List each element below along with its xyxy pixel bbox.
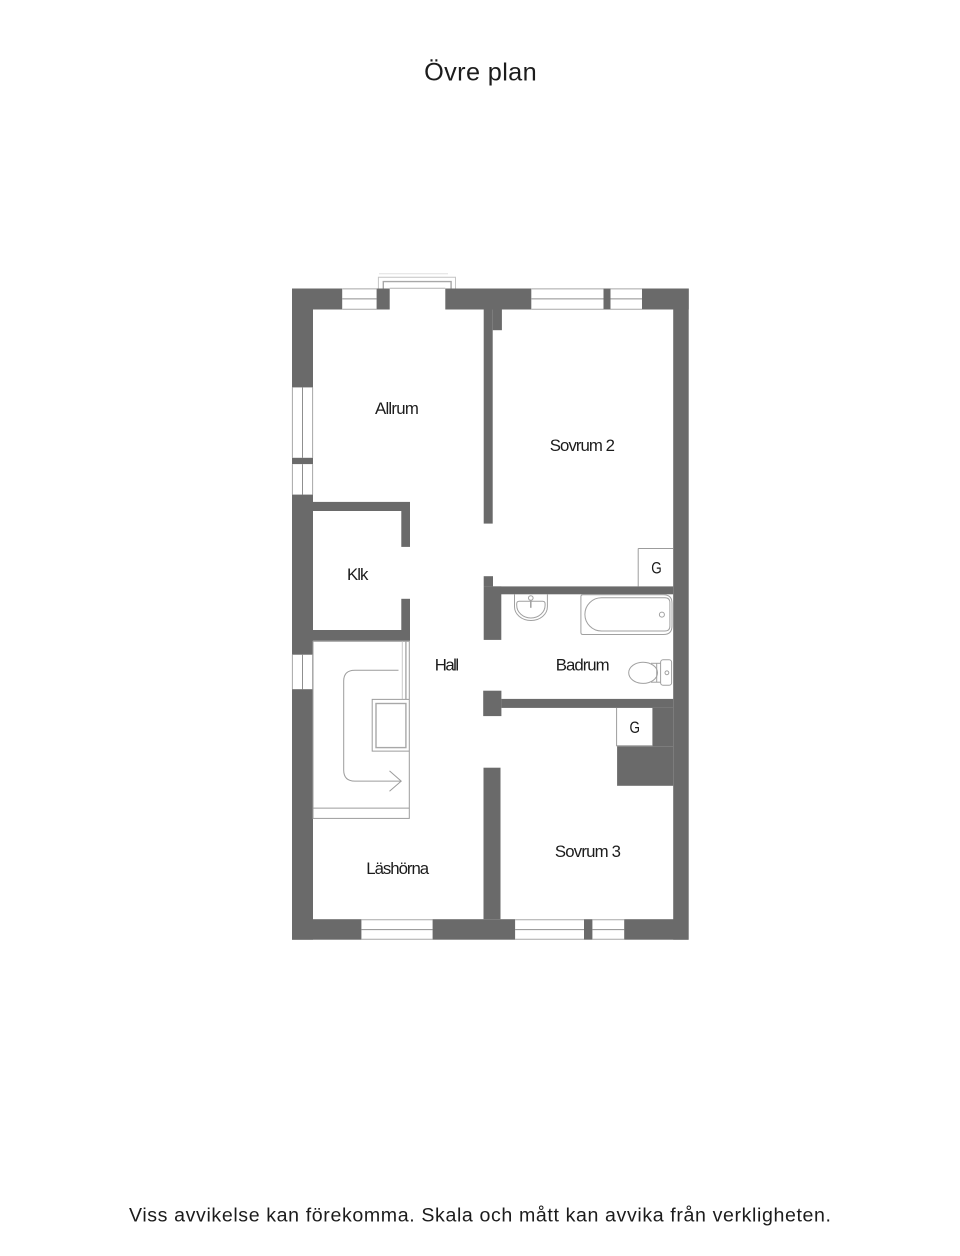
svg-text:Badrum: Badrum	[556, 655, 610, 674]
svg-text:Sovrum 3: Sovrum 3	[555, 842, 621, 861]
svg-text:Viss avvikelse kan förekomma.: Viss avvikelse kan förekomma. Skala och …	[129, 1205, 831, 1227]
svg-text:Allrum: Allrum	[375, 399, 419, 418]
svg-text:Sovrum 2: Sovrum 2	[550, 436, 615, 455]
svg-text:Övre plan: Övre plan	[424, 59, 537, 87]
svg-text:G: G	[629, 718, 640, 737]
svg-text:Hall: Hall	[435, 656, 459, 675]
svg-text:G: G	[651, 559, 662, 578]
svg-text:Läshörna: Läshörna	[366, 859, 429, 878]
svg-text:Klk: Klk	[347, 565, 369, 584]
